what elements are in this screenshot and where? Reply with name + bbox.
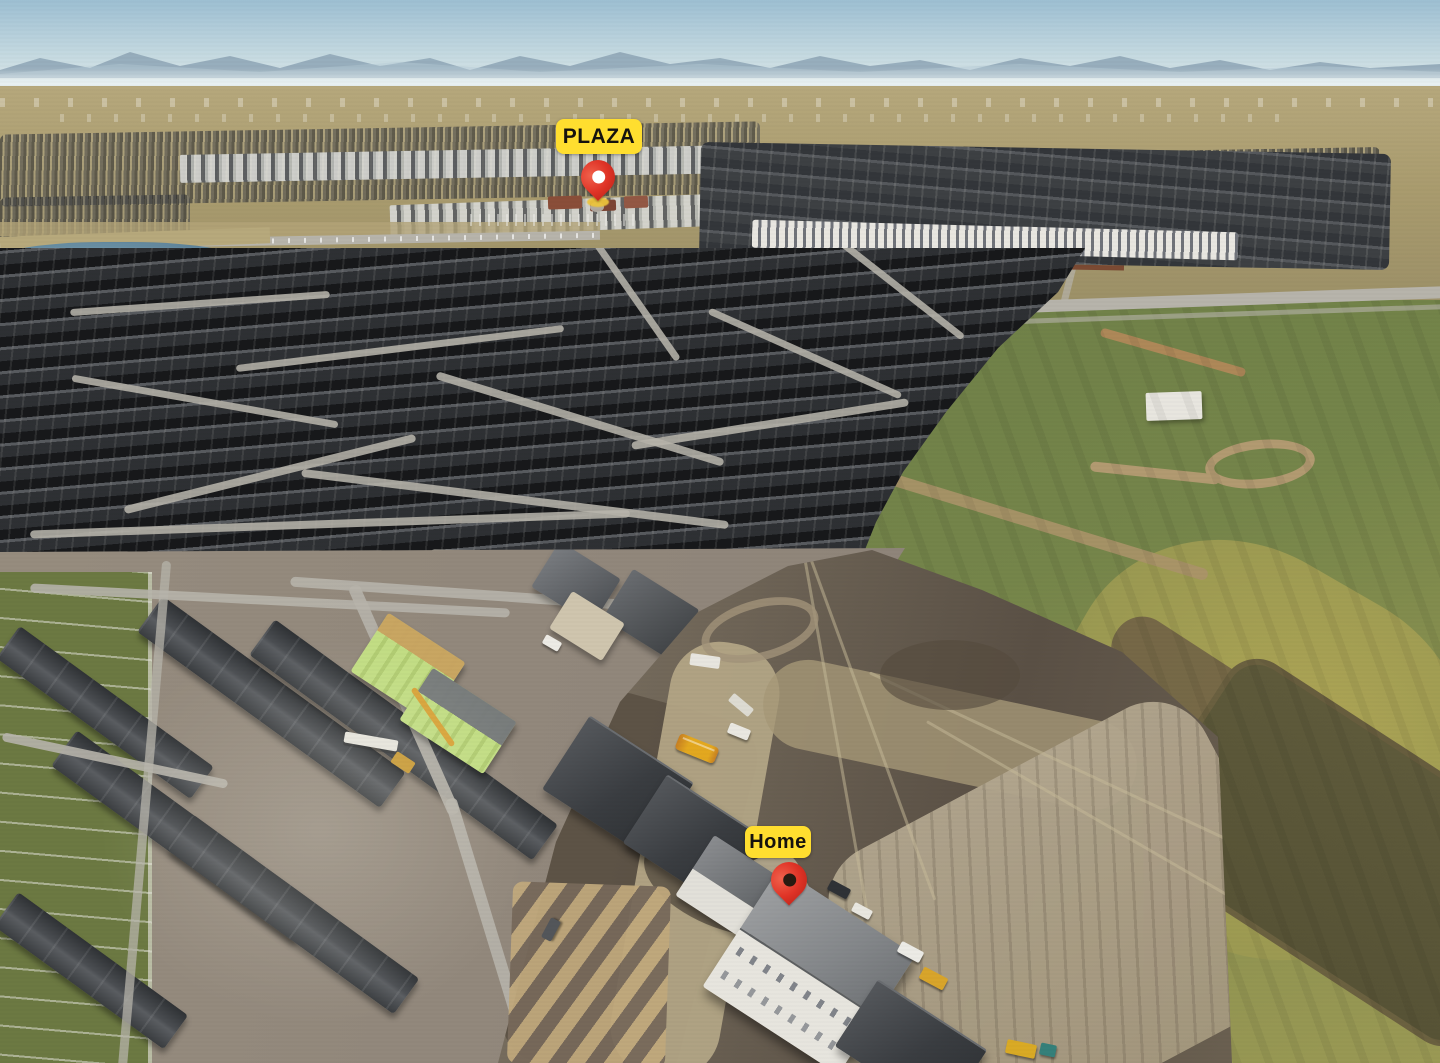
- plaza-map-label: PLAZA: [556, 119, 642, 154]
- aerial-photo: PLAZA Home: [0, 0, 1440, 1063]
- street: [435, 371, 724, 466]
- townhouse-row: [167, 814, 419, 1014]
- dirt-road: [1090, 461, 1220, 485]
- street: [71, 375, 338, 429]
- dirt-road-loop: [1203, 434, 1317, 493]
- small-building: [1146, 391, 1203, 421]
- industrial-strip: [60, 114, 1280, 122]
- street: [631, 398, 909, 450]
- street: [589, 235, 681, 362]
- plaza-building: [624, 196, 648, 209]
- home-map-label: Home: [745, 826, 811, 858]
- street: [236, 325, 564, 372]
- street: [123, 434, 416, 514]
- street: [30, 510, 630, 539]
- parking-lot: [470, 214, 640, 226]
- driveway-strip: [507, 881, 671, 1063]
- industrial-strip: [0, 98, 1440, 107]
- dirt-road: [881, 471, 1210, 582]
- street: [708, 308, 903, 400]
- dirt-path: [1100, 328, 1247, 378]
- plaza-building: [548, 195, 582, 209]
- street: [835, 236, 965, 340]
- street: [70, 291, 330, 316]
- wet-patch: [880, 640, 1020, 710]
